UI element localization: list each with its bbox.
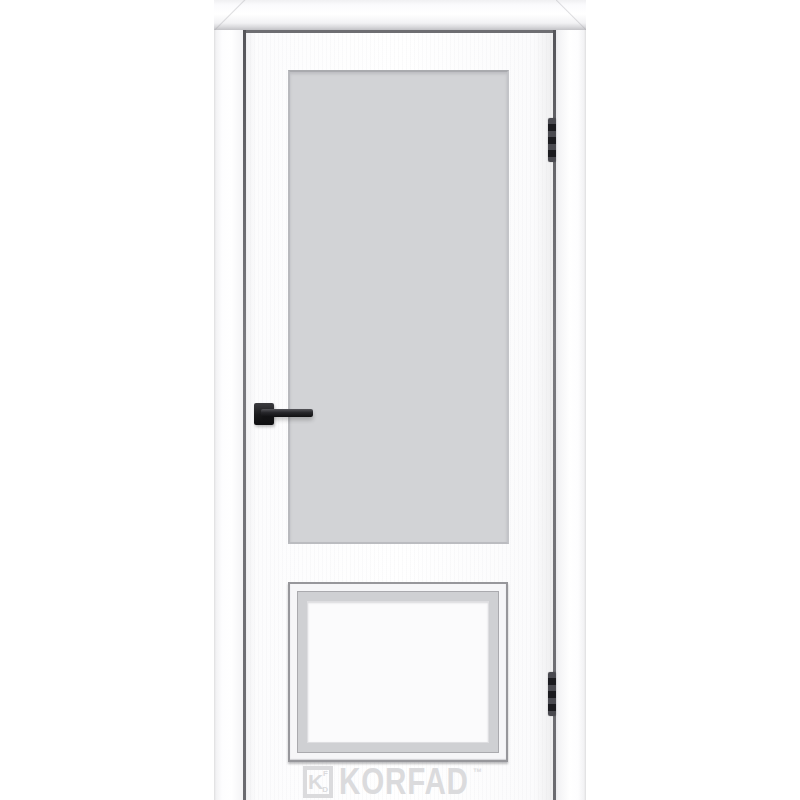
logo-letter: K (308, 771, 323, 793)
lower-panel-band (297, 591, 499, 753)
brand-watermark: K F D KORFAD ™ (303, 766, 484, 800)
product-photo-door: K F D KORFAD ™ (0, 0, 800, 800)
frame-miter-joint-left (214, 0, 246, 30)
logo-small-top: F (323, 770, 328, 778)
frame-miter-joint-right (556, 0, 586, 30)
brand-name: KORFAD (339, 766, 469, 798)
door-frame-casing-left (214, 0, 246, 800)
door-frame-lintel (214, 0, 586, 30)
hinge-bottom-icon (548, 672, 556, 716)
lower-panel-molding (288, 582, 508, 762)
frosted-glass-panel (288, 70, 509, 544)
door-frame-casing-right (556, 0, 586, 800)
hinge-top-icon (548, 118, 556, 162)
lever-handle (261, 409, 313, 417)
lower-panel-inner (307, 601, 489, 743)
logo-small-bottom: D (322, 786, 328, 794)
trademark-symbol: ™ (473, 767, 482, 778)
korfad-logo-icon: K F D (303, 766, 333, 798)
door-leaf (246, 33, 553, 800)
